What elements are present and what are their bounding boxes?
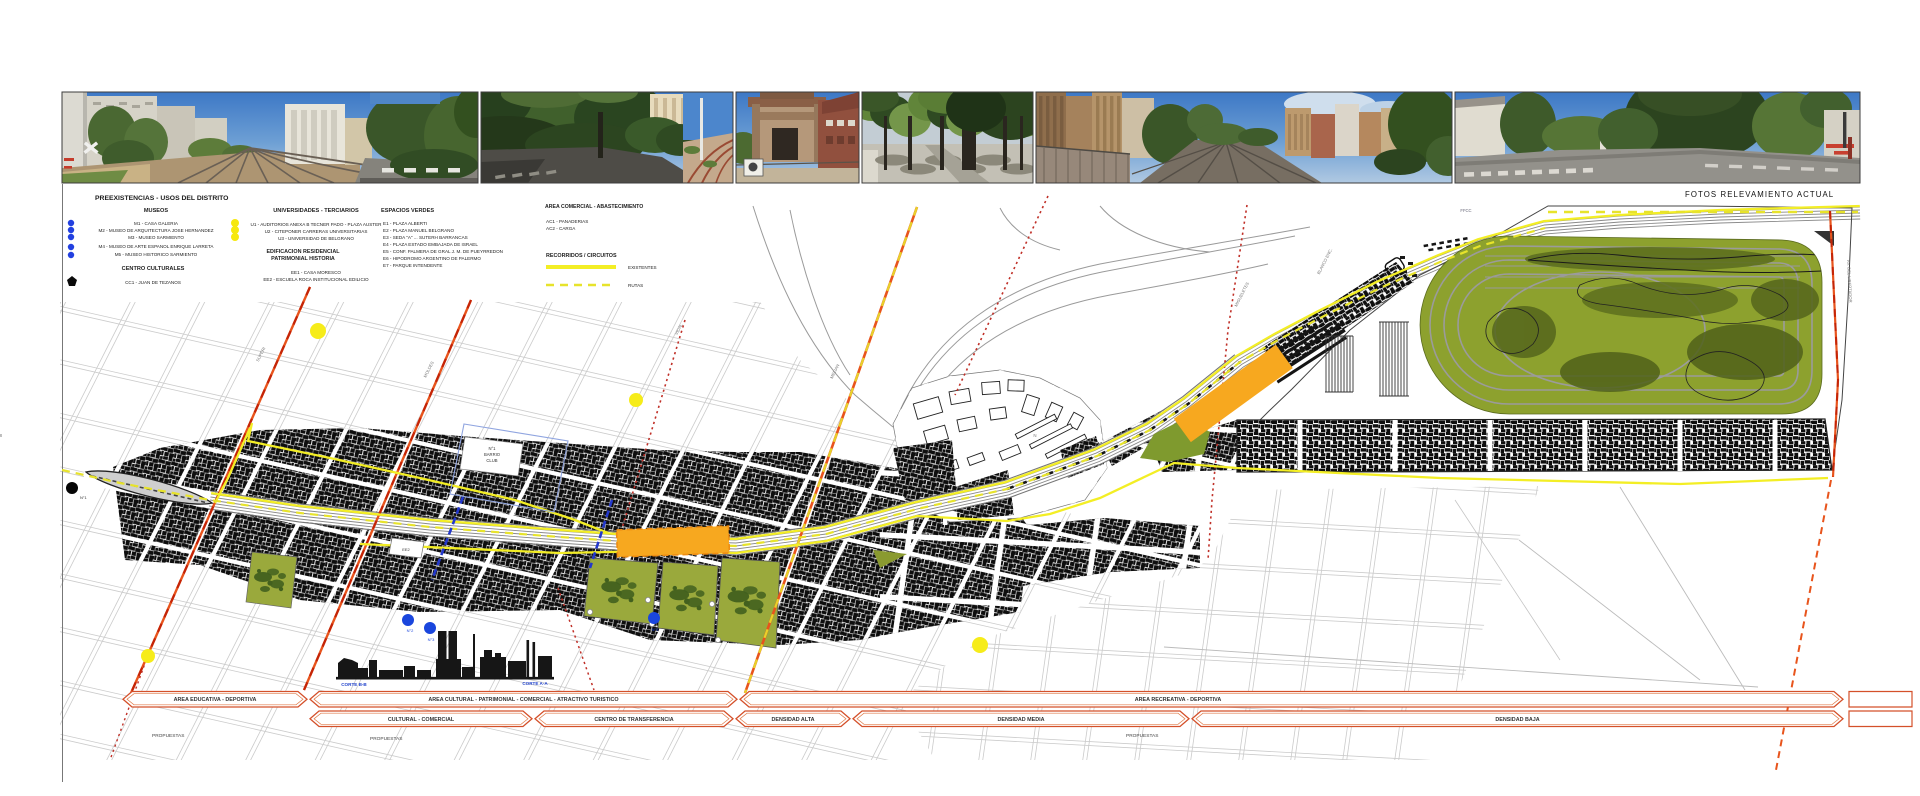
svg-text:M4 - MUSEO DE ARTE ESPANOL ENR: M4 - MUSEO DE ARTE ESPANOL ENRIQUE LARRE… <box>99 244 215 249</box>
svg-text:PROPUESTAS: PROPUESTAS <box>370 736 402 742</box>
svg-text:AREA EDUCATIVA - DEPORTIVA: AREA EDUCATIVA - DEPORTIVA <box>174 697 257 703</box>
svg-text:PROPUESTAS: PROPUESTAS <box>1126 733 1158 739</box>
svg-text:EDIFICACION RESIDENCIAL: EDIFICACION RESIDENCIAL <box>266 249 340 255</box>
svg-text:ESPACIOS VERDES: ESPACIOS VERDES <box>381 208 434 214</box>
svg-text:AREA CULTURAL - PATRIMONIAL -: AREA CULTURAL - PATRIMONIAL - COMERCIAL … <box>428 697 618 703</box>
svg-text:MUSEOS: MUSEOS <box>144 208 169 214</box>
svg-text:AREA RECREATIVA - DEPORTIVA: AREA RECREATIVA - DEPORTIVA <box>1135 697 1222 703</box>
svg-text:CORTE B-B: CORTE B-B <box>341 682 367 687</box>
svg-text:RECORRIDOS / CIRCUITOS: RECORRIDOS / CIRCUITOS <box>546 253 617 259</box>
svg-text:DENSIDAD ALTA: DENSIDAD ALTA <box>771 717 814 723</box>
svg-text:DENSIDAD BAJA: DENSIDAD BAJA <box>1495 717 1539 723</box>
svg-text:E7 - PARQUE INTENDENTE: E7 - PARQUE INTENDENTE <box>383 263 442 268</box>
svg-text:DENSIDAD MEDIA: DENSIDAD MEDIA <box>997 717 1044 723</box>
svg-text:FOTOS RELEVAMIENTO ACTUAL: FOTOS RELEVAMIENTO ACTUAL <box>1685 190 1834 199</box>
svg-text:CULTURAL - COMERCIAL: CULTURAL - COMERCIAL <box>388 717 455 723</box>
svg-text:EE2 - ESCUELA ROCA INSTITUCION: EE2 - ESCUELA ROCA INSTITUCIONAL EDILICI… <box>263 277 369 282</box>
svg-text:N°2: N°2 <box>407 628 414 633</box>
svg-text:N°4: N°4 <box>652 627 659 632</box>
svg-text:M5 - MUSEO HISTORICO SARMIENTO: M5 - MUSEO HISTORICO SARMIENTO <box>115 252 198 257</box>
svg-text:N°1: N°1 <box>488 446 496 451</box>
svg-text:UNIVERSIDADES - TERCIARIOS: UNIVERSIDADES - TERCIARIOS <box>273 208 359 214</box>
svg-text:U3 - UNIVERSIDAD DE BELGRANO: U3 - UNIVERSIDAD DE BELGRANO <box>278 236 354 241</box>
svg-text:CLUB: CLUB <box>486 458 497 463</box>
svg-text:N°3: N°3 <box>428 637 435 642</box>
svg-text:PATRIMONIAL HISTORIA: PATRIMONIAL HISTORIA <box>271 256 335 262</box>
svg-text:EE1 - CASA MORESCO: EE1 - CASA MORESCO <box>291 270 341 275</box>
svg-text:E2 - PLAZA MANUEL BELGRANO: E2 - PLAZA MANUEL BELGRANO <box>383 228 454 233</box>
svg-text:BARRIO: BARRIO <box>484 452 501 457</box>
svg-text:E5 - CONF. PALMERA DE GRAL J.: E5 - CONF. PALMERA DE GRAL J. M. DE PUEY… <box>383 249 503 254</box>
svg-text:FFCC: FFCC <box>1460 208 1471 213</box>
svg-text:CC1 - JUAN DE TEZANOS: CC1 - JUAN DE TEZANOS <box>125 280 181 285</box>
svg-text:AC1 - PANADERIAS: AC1 - PANADERIAS <box>546 219 588 224</box>
svg-text:U2 - CITEPONER CARRERAS UNIVER: U2 - CITEPONER CARRERAS UNIVERSITARIAS <box>265 229 368 234</box>
svg-text:CORTE A-A: CORTE A-A <box>522 681 548 686</box>
svg-text:PROPUESTAS: PROPUESTAS <box>152 733 184 739</box>
svg-text:EE2: EE2 <box>402 547 410 552</box>
svg-text:PREEXISTENCIAS - USOS DEL DIST: PREEXISTENCIAS - USOS DEL DISTRITO <box>95 195 228 202</box>
svg-text:EXISTENTES: EXISTENTES <box>628 265 657 270</box>
svg-text:M2 - MUSEO DE ARQUITECTURA JOS: M2 - MUSEO DE ARQUITECTURA JOSE HERNANDE… <box>98 228 213 233</box>
svg-text:U1 - AUDITORIOS ANEXA B TECNER: U1 - AUDITORIOS ANEXA B TECNER PADO - PL… <box>251 222 383 227</box>
svg-text:E4 - PLAZA ESTADO EMBAJADA DE: E4 - PLAZA ESTADO EMBAJADA DE ISRAEL <box>383 242 478 247</box>
svg-text:E3 - SEDA "A" ... SUTERH BARRA: E3 - SEDA "A" ... SUTERH BARRANCAS <box>383 235 468 240</box>
svg-text:E6 - HIPODROMO ARGENTINO DE PA: E6 - HIPODROMO ARGENTINO DE PALERMO <box>383 256 481 261</box>
svg-text:CENTRO CULTURALES: CENTRO CULTURALES <box>122 266 185 272</box>
svg-text:M1 - CASA GALERIA: M1 - CASA GALERIA <box>134 221 179 226</box>
svg-text:AREA COMERCIAL - ABASTECIMIENT: AREA COMERCIAL - ABASTECIMIENTO <box>545 204 643 210</box>
svg-text:M3 - MUSEO SARMIENTO: M3 - MUSEO SARMIENTO <box>128 235 184 240</box>
svg-text:E1 - PLAZA ALBERTI: E1 - PLAZA ALBERTI <box>383 221 427 226</box>
svg-text:RUTAS: RUTAS <box>628 283 643 288</box>
svg-text:CENTRO DE TRANSFERENCIA: CENTRO DE TRANSFERENCIA <box>594 717 673 723</box>
svg-text:AC2 - CARGA: AC2 - CARGA <box>546 226 576 231</box>
svg-text:N°1: N°1 <box>80 495 87 500</box>
